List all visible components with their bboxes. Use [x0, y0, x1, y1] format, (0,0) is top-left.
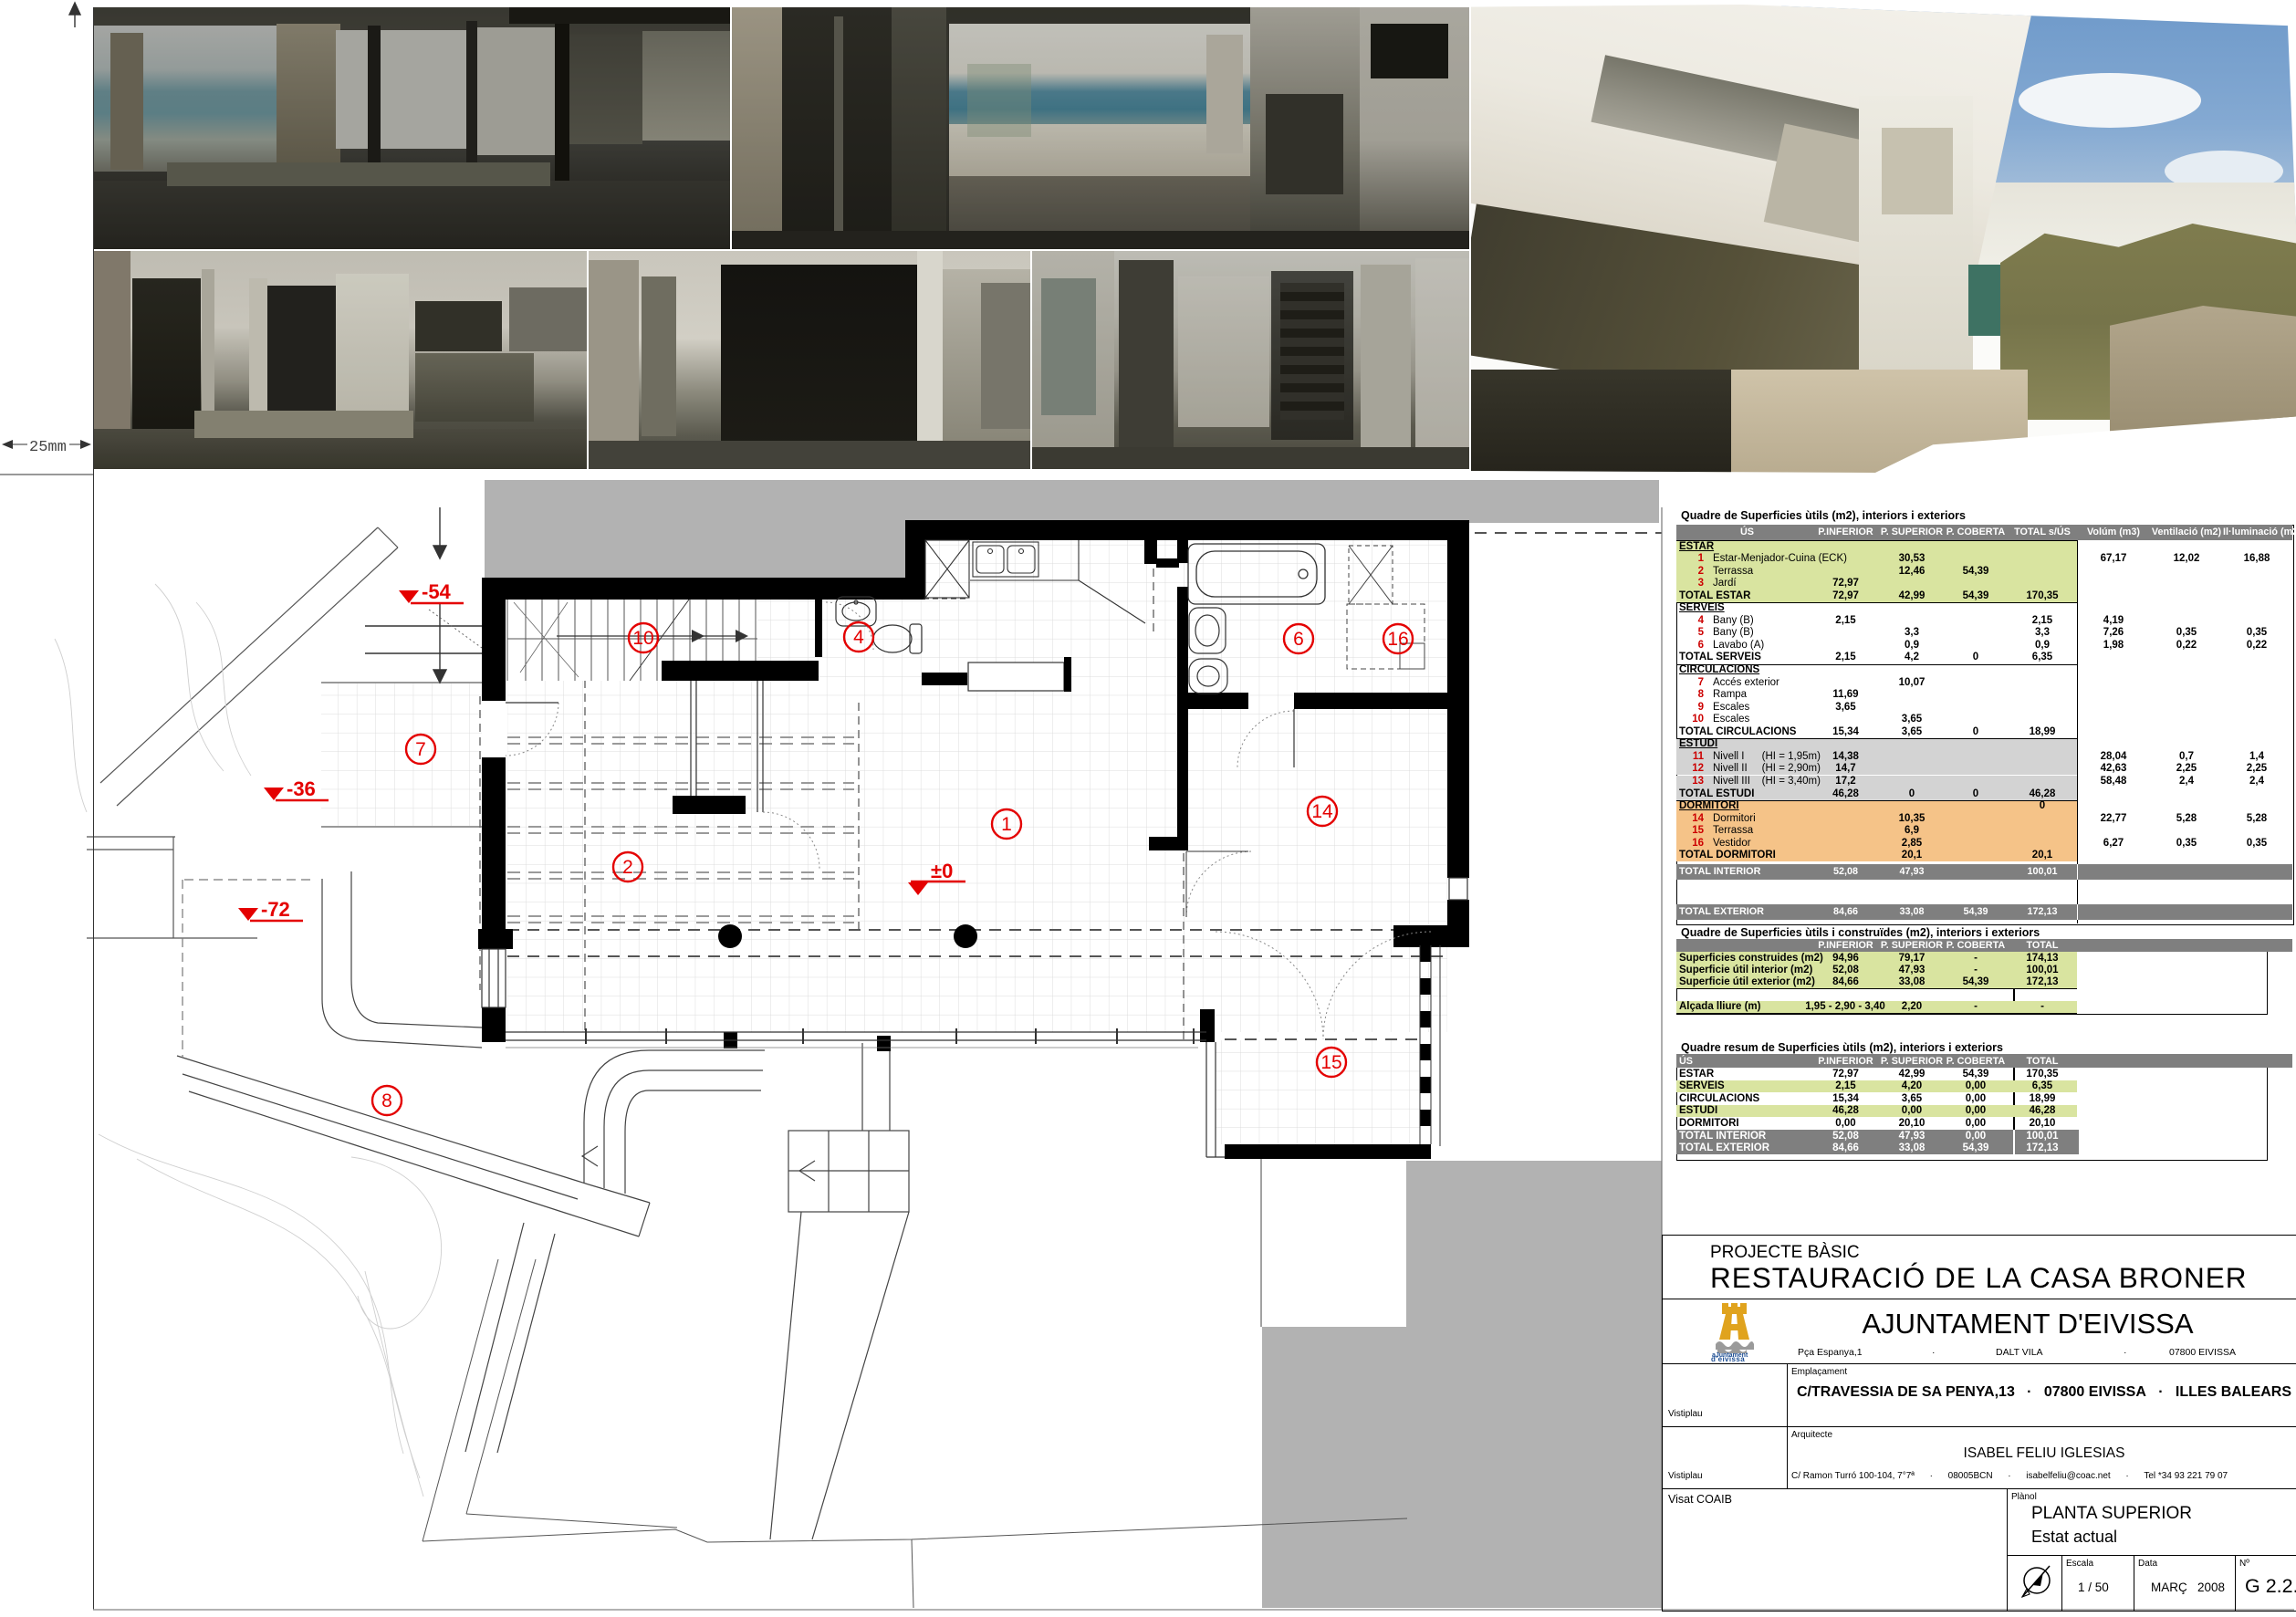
svg-text:4: 4: [853, 627, 864, 648]
svg-text:±0: ±0: [931, 860, 953, 882]
svg-text:15: 15: [1320, 1052, 1341, 1073]
svg-text:6: 6: [1293, 629, 1304, 650]
svg-text:1: 1: [1001, 814, 1012, 835]
svg-text:10: 10: [632, 628, 653, 649]
svg-text:d'eivissa: d'eivissa: [1711, 1355, 1745, 1361]
svg-text:8: 8: [381, 1090, 392, 1111]
svg-text:-36: -36: [287, 777, 316, 800]
svg-text:25mm: 25mm: [29, 439, 67, 456]
svg-text:-72: -72: [261, 898, 290, 921]
svg-text:16: 16: [1387, 629, 1408, 650]
svg-text:-54: -54: [422, 580, 452, 603]
svg-text:2: 2: [622, 857, 633, 878]
svg-text:7: 7: [415, 739, 426, 760]
svg-text:14: 14: [1311, 801, 1333, 822]
